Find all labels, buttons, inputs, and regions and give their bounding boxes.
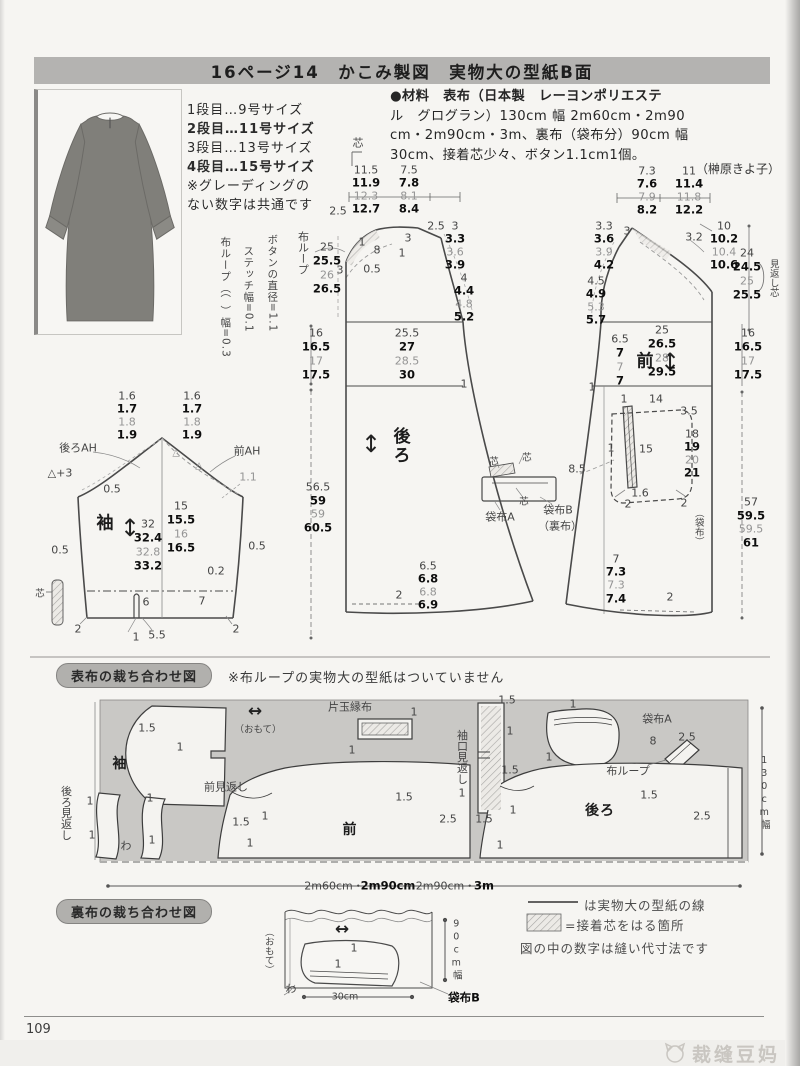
footer-rule [24,1016,764,1017]
legend-fuse-label: =接着芯をはる箇所 [565,915,684,934]
sleeve-piece [46,438,243,632]
watermark-band: 裁缝豆妈 [0,1040,800,1066]
main-layout-header: 表布の裁ち合わせ図 [56,663,212,688]
watermark-text: 裁缝豆妈 [692,1040,780,1066]
pocket-assembly [482,453,614,510]
magazine-page: 16ページ14 かこみ製図 実物大の型紙B面 1段目…9号サイズ 2段目…11号… [0,0,800,1066]
loop-pattern-note: ※布ループの実物大の型紙はついていません [228,667,504,686]
page-number: 109 [26,1022,51,1037]
cutting-layout-lining [284,910,448,998]
cutting-layout-main [95,700,764,888]
legend-note: 図の中の数字は縫い代寸法です [520,938,709,957]
back-piece [310,152,534,640]
lining-layout-header: 裏布の裁ち合わせ図 [56,899,212,924]
watermark-logo-icon [664,1042,686,1064]
front-piece [566,193,764,620]
legend-line-label: は実物大の型紙の線 [584,895,706,914]
scan-edge-right [785,0,800,1066]
